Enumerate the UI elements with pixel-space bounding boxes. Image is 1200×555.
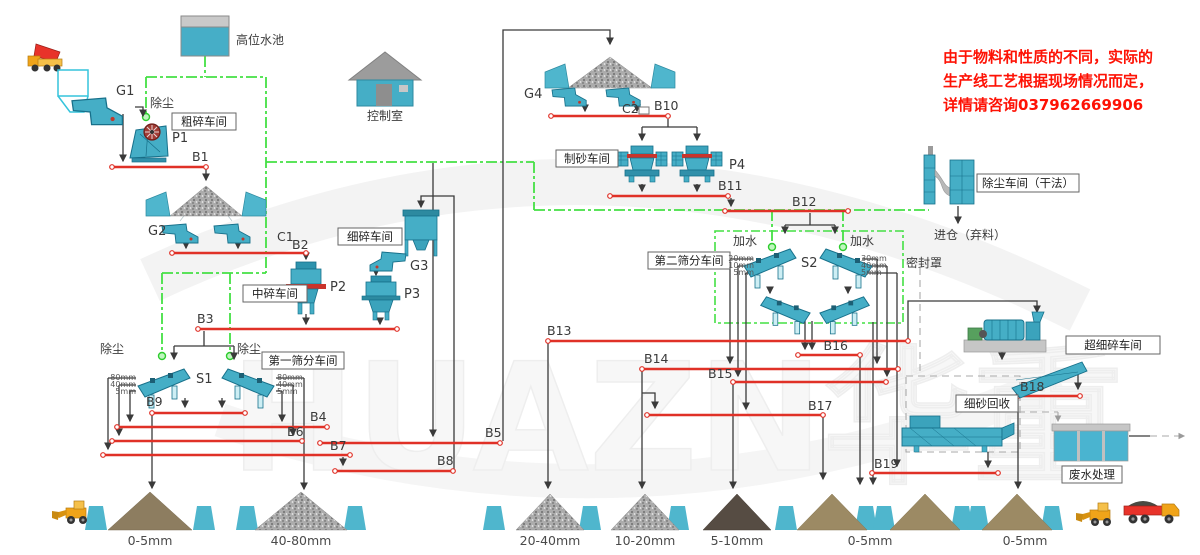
water-tank-label: 高位水池 [236,32,284,47]
add-water-valve-right [840,244,847,251]
b13-label: B13 [547,323,571,338]
svg-text:第二筛分车间: 第二筛分车间 [655,254,724,268]
add-water-right-label: 加水 [850,234,874,248]
g2-label: G2 [148,224,166,239]
transfer-bin-c2 [639,107,649,114]
svg-text:制砂车间: 制砂车间 [564,152,610,166]
haul-truck-right [1124,501,1179,524]
b16-label: B16 [824,338,849,353]
silo-waste-label: 进仓（弃料） [934,227,1006,242]
p1-label: P1 [172,131,188,146]
b7-label: B7 [330,438,347,453]
vibrating-screen-s2-lower-left [761,297,810,334]
notice-line-3: 详情请咨询037962669906 [943,96,1143,114]
feeder-g4-left [552,88,586,106]
dust-spray-point-s1-left [159,353,166,360]
feeder-g3 [370,252,406,271]
b6-label: B6 [287,424,304,439]
b15-label: B15 [708,366,732,381]
add-water-left-label: 加水 [733,234,757,248]
label-medium-workshop: 中碎车间 [243,285,307,302]
b12-label: B12 [792,194,816,209]
wastewater-pool [1052,424,1130,461]
svg-text:第一筛分车间: 第一筛分车间 [269,354,338,368]
c2-label: C2 [622,101,639,116]
pile-label-2: 40-80mm [271,533,332,548]
s2-right-size-5: 5mm [861,268,882,277]
svg-text:细砂回收: 细砂回收 [964,397,1010,411]
b9-label: B9 [146,394,163,409]
p4-label: P4 [729,158,745,173]
wheel-loader-right [1076,503,1111,526]
vibrating-feeder-g1 [72,98,122,125]
pile-label-5: 5-10mm [711,533,764,548]
dust-collector [924,146,974,204]
label-ultrafine-workshop: 超细碎车间 [1066,336,1160,354]
conveyor-b3 [196,327,400,332]
b17-label: B17 [808,398,832,413]
b1-label: B1 [192,149,209,164]
elevated-water-tank [181,16,229,56]
conveyor-b10 [549,114,671,119]
svg-text:中碎车间: 中碎车间 [252,287,298,301]
svg-text:除尘车间（干法）: 除尘车间（干法） [982,176,1074,190]
g4-label: G4 [524,87,542,102]
dust-label-p1: 除尘 [150,95,174,110]
b11-label: B11 [718,178,742,193]
p2-label: P2 [330,280,346,295]
p3-label: P3 [404,287,420,302]
vibrating-screen-s2-lower-right [820,297,869,334]
watermark-text: HUAZN华重 [230,332,1123,506]
label-wastewater: 废水处理 [1062,466,1122,483]
control-room-label: 控制室 [367,108,403,123]
surge-pile-g2 [146,186,266,216]
pile-label-1: 0-5mm [128,533,173,548]
b4-label: B4 [310,409,327,424]
notice-line-2: 生产线工艺根据现场情况而定， [943,72,1153,90]
b5-label: B5 [485,425,502,440]
s1-label: S1 [196,372,213,387]
ultrafine-mill [964,312,1046,352]
add-water-valve-left [769,244,776,251]
pile-label-3: 20-40mm [520,533,581,548]
b3-label: B3 [197,311,214,326]
label-coarse-workshop: 粗碎车间 [172,113,236,130]
jaw-crusher-p1 [130,124,168,162]
sealed-cover-label: 密封罩 [906,255,942,270]
wheel-loader-left [52,501,87,524]
dust-label-s1-right: 除尘 [237,341,261,356]
label-screen1-workshop: 第一筛分车间 [262,352,344,369]
b10-label: B10 [654,98,679,113]
g1-label: G1 [116,84,134,99]
svg-text:粗碎车间: 粗碎车间 [181,115,227,129]
b14-label: B14 [644,351,669,366]
s2-label: S2 [801,256,818,271]
notice-line-1: 由于物料和性质的不同，实际的 [943,48,1153,66]
surge-pile-g4 [545,57,675,88]
s1-right-size-5: 5mm [277,387,298,396]
process-flow-diagram: HUAZN华重 [0,0,1200,555]
control-room [349,52,421,106]
s2-left-size-5: 5mm [733,268,754,277]
stockpile-0-5mm-1 [108,492,192,530]
pile-label-7: 0-5mm [1003,533,1048,548]
label-screen2-workshop: 第二筛分车间 [648,252,730,269]
dust-spray-point-s1-right [227,353,234,360]
dump-truck-feed [28,44,62,72]
svg-text:超细碎车间: 超细碎车间 [1084,338,1142,352]
svg-text:废水处理: 废水处理 [1069,468,1115,482]
b8-label: B8 [437,453,454,468]
conveyor-b1 [110,165,209,170]
svg-text:细碎车间: 细碎车间 [347,230,393,244]
b19-label: B19 [874,456,899,471]
cone-crusher-p3 [362,276,400,320]
b2-label: B2 [292,237,309,252]
label-fine-workshop: 细碎车间 [338,228,402,245]
s1-left-size-5: 5mm [115,387,136,396]
pile-label-4: 10-20mm [615,533,676,548]
dust-label-s1-left: 除尘 [100,341,124,356]
feeder-g2-left [162,224,198,243]
b18-label: B18 [1020,379,1045,394]
label-dust-workshop: 除尘车间（干法） [977,174,1079,192]
label-sand-workshop: 制砂车间 [556,150,618,167]
g3-label: G3 [410,259,428,274]
label-sand-recovery: 细砂回收 [956,395,1018,412]
pile-label-6: 0-5mm [848,533,893,548]
